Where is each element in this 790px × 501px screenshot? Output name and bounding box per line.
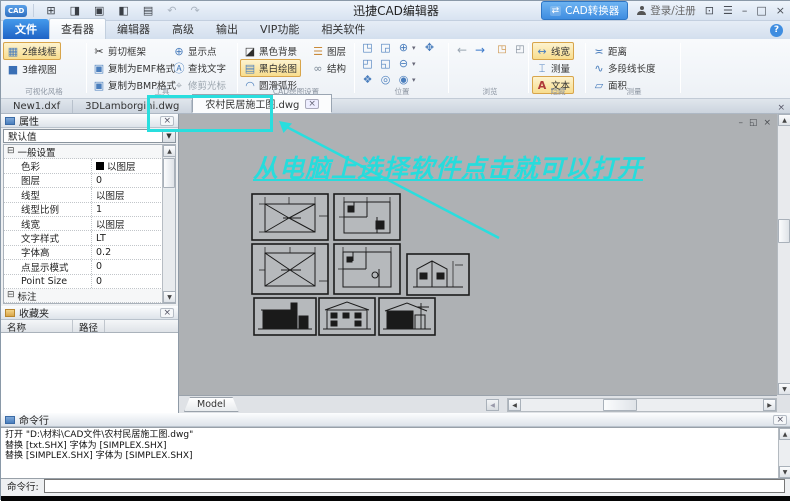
feedback-icon[interactable]: ⊡ (705, 4, 714, 17)
cad-drawing-sheets (249, 191, 473, 341)
doc-tab-new1[interactable]: New1.dxf (1, 100, 73, 113)
favorites-list[interactable] (1, 333, 178, 414)
divider (86, 43, 87, 93)
divider (528, 43, 529, 93)
command-icon (5, 416, 15, 424)
command-input-row: 命令行: (1, 478, 790, 494)
tab-editor[interactable]: 编辑器 (106, 19, 161, 39)
scroll-down-icon[interactable]: ▼ (779, 466, 790, 478)
section-general[interactable]: ⊟ 一般设置 (4, 145, 175, 159)
distance-button[interactable]: ≍ 距离 (589, 42, 631, 60)
cube-3d-icon: ■ (7, 64, 19, 75)
scroll-thumb[interactable] (603, 399, 637, 411)
color-swatch (96, 162, 104, 170)
distance-icon: ≍ (593, 46, 605, 57)
group-cad-draw-settings: ◪ 黑色背景 ▤ 黑白绘图 ◠ 圆滑弧形 ☰ 图层 ∞ 结构 CAD绘图设置 (240, 39, 352, 97)
favorites-close-icon[interactable]: × (160, 308, 174, 318)
group-position: ◳ ◲ ⊕ ▾ ✥ ◰ ◱ ⊖ ▾ ❖ ◎ ◉ ▾ 位置 (358, 39, 446, 97)
property-row[interactable]: Point Size 0 (4, 275, 175, 289)
copy-emf-icon: ▣ (93, 63, 105, 74)
divider (448, 43, 449, 93)
menu-icon[interactable]: ☰ (723, 4, 733, 17)
tab-vip[interactable]: VIP功能 (249, 19, 310, 39)
wireframe-2d-button[interactable]: ▦ 2维线框 (3, 42, 61, 60)
view-3d-button[interactable]: ■ 3维视图 (3, 60, 61, 78)
file-menu-button[interactable]: 文件 (3, 19, 49, 39)
copy-emf-button[interactable]: ▣ 复制为EMF格式 (89, 59, 179, 77)
measure-toggle-icon: ⌶ (536, 63, 548, 74)
group-hide: ↔ 线宽 ⌶ 测量 A 文本 隐藏 (532, 39, 584, 97)
property-row[interactable]: 色彩 以图层 (4, 159, 175, 173)
favorites-folder-icon (5, 309, 15, 317)
export-pdf-icon[interactable]: ◧ (118, 4, 128, 17)
lineweight-button[interactable]: ↔ 线宽 (532, 42, 574, 60)
group-label: 位置 (358, 86, 446, 97)
group-label: 隐藏 (532, 86, 584, 97)
converter-icon: ⇄ (550, 6, 562, 16)
property-row[interactable]: 线型 以图层 (4, 188, 175, 202)
scroll-down-icon[interactable]: ▼ (778, 383, 790, 395)
property-grid: ⊟ 一般设置 色彩 以图层 图层 0 线型 以图层 线型比例 1 线宽 以图层 … (3, 144, 176, 304)
section-dimension[interactable]: ⊟ 标注 (4, 289, 175, 303)
menu-bar: 文件 查看器 编辑器 高级 输出 VIP功能 相关软件 ? (1, 21, 790, 39)
canvas-bottom-bar: Model ◀ ◀ ▶ (179, 395, 790, 413)
tab-output[interactable]: 输出 (205, 19, 249, 39)
prev-sheet-icon[interactable]: ◰ (512, 43, 528, 57)
mdi-close-icon[interactable]: × (763, 118, 771, 128)
cut-frame-button[interactable]: ✂ 剪切框架 (89, 42, 150, 60)
property-row[interactable]: 线宽 以图层 (4, 217, 175, 231)
model-tab[interactable]: Model (184, 397, 239, 412)
canvas-vscrollbar[interactable]: ▲ ▼ (777, 114, 790, 395)
command-panel: 命令行 × 打开 "D:\材料\CAD文件\农村民居施工图.dwg" 替换 [t… (1, 413, 790, 497)
chevron-down-icon[interactable]: ▼ (162, 130, 175, 142)
group-visual-style: ▦ 2维线框 ■ 3维视图 可视化风格 (3, 39, 85, 97)
new-file-icon[interactable]: ⊞ (46, 4, 55, 17)
app-logo-icon: CAD (5, 5, 27, 17)
command-input[interactable] (44, 479, 785, 493)
left-panel: 属性 × 默认值 ▼ ⊟ 一般设置 色彩 以图层 图层 0 线型 以图层 线型比… (1, 114, 179, 413)
open-file-icon[interactable]: ◨ (70, 4, 80, 17)
back-icon[interactable]: ← (454, 43, 470, 57)
doc-tab-lamborgini[interactable]: 3DLamborgini.dwg (73, 100, 192, 113)
zoom-in-dropdown-icon[interactable]: ▾ (412, 44, 416, 52)
properties-close-icon[interactable]: × (160, 116, 174, 126)
doc-tab-active[interactable]: 农村民居施工图.dwg × (192, 94, 332, 113)
group-label: 浏览 (452, 86, 528, 97)
fit-view-icon[interactable]: ◱ (378, 57, 393, 71)
cascade-views-icon[interactable]: ❖ (360, 73, 375, 87)
bw-drawing-button[interactable]: ▤ 黑白绘图 (240, 59, 301, 77)
command-title: 命令行 (19, 412, 49, 427)
layers-button[interactable]: ☰ 图层 (308, 42, 350, 60)
app-window: { "glyphs": { "qat_new": "⊞", "qat_open"… (0, 0, 790, 500)
divider (680, 43, 681, 93)
forward-icon[interactable]: → (472, 43, 488, 57)
bottom-black-bar (1, 496, 790, 501)
pan-window-icon[interactable]: ◳ (360, 41, 375, 55)
group-measure: ≍ 距离 ∿ 多段线长度 ▱ 面积 测量 (589, 39, 679, 97)
scrollbar-corner (777, 395, 790, 413)
close-button[interactable]: × (776, 4, 785, 17)
favorites-col-path[interactable]: 路径 (73, 320, 105, 332)
command-log[interactable]: 打开 "D:\材料\CAD文件\农村民居施工图.dwg" 替换 [txt.SHX… (1, 427, 790, 479)
tab-viewer[interactable]: 查看器 (49, 18, 106, 39)
lineweight-icon: ↔ (536, 46, 548, 57)
zoom-previous-icon[interactable]: ◎ (378, 73, 393, 87)
scroll-up-icon[interactable]: ▲ (778, 114, 790, 126)
show-points-icon: ⊕ (173, 46, 185, 57)
zoom-out-icon[interactable]: ⊖ (396, 57, 411, 71)
collapse-icon[interactable]: ⊟ (7, 147, 15, 156)
group-label: 测量 (589, 86, 679, 97)
scroll-up-icon[interactable]: ▲ (779, 428, 790, 440)
duplicate-view-icon[interactable]: ◰ (360, 57, 375, 71)
group-tools: ✂ 剪切框架 ▣ 复制为EMF格式 ▣ 复制为BMP格式 ⊕ 显示点 Ⓐ 查找文… (89, 39, 235, 97)
pan-hand-icon[interactable]: ✥ (422, 41, 437, 55)
converter-label: CAD转换器 (565, 3, 619, 18)
command-log-scrollbar[interactable]: ▲ ▼ (778, 428, 790, 478)
print-icon[interactable]: ▤ (143, 4, 153, 17)
divider (354, 43, 355, 93)
mdi-controls: – ◱ × (738, 118, 771, 128)
structure-button[interactable]: ∞ 结构 (308, 59, 350, 77)
properties-icon (5, 117, 15, 125)
measure-toggle-button[interactable]: ⌶ 测量 (532, 59, 574, 77)
properties-title: 属性 (19, 113, 39, 128)
next-sheet-icon[interactable]: ◳ (494, 43, 510, 57)
show-points-button[interactable]: ⊕ 显示点 (169, 42, 221, 60)
collapse-icon[interactable]: ⊟ (7, 291, 15, 300)
preset-dropdown[interactable]: 默认值 ▼ (3, 129, 176, 143)
property-row[interactable]: 点显示模式 0 (4, 260, 175, 274)
properties-header: 属性 × (1, 114, 178, 128)
wireframe-2d-icon: ▦ (7, 46, 19, 57)
zoom-out-dropdown-icon[interactable]: ▾ (412, 60, 416, 68)
log-line: 替换 [SIMPLEX.SHX] 字体为 [SIMPLEX.SHX] (5, 451, 787, 462)
find-text-icon: Ⓐ (173, 63, 185, 74)
property-grid-scrollbar[interactable]: ▲ ▼ (162, 145, 175, 303)
canvas-hscrollbar[interactable]: ◀ ▶ (507, 398, 777, 412)
user-icon (637, 6, 646, 15)
document-tab-bar: New1.dxf 3DLamborgini.dwg 农村民居施工图.dwg × … (1, 99, 790, 114)
titlebar-right: ⇄ CAD转换器 登录/注册 ⊡ ☰ – □ × (541, 1, 790, 20)
drawing-canvas[interactable]: – ◱ × (179, 114, 790, 413)
black-background-icon: ◪ (244, 46, 256, 57)
scroll-down-icon[interactable]: ▼ (163, 291, 176, 303)
cut-frame-icon: ✂ (93, 46, 105, 57)
help-icon[interactable]: ? (770, 24, 783, 37)
divider (585, 43, 586, 93)
zoom-extents-icon[interactable]: ◉ (396, 73, 411, 87)
quick-access-toolbar: ⊞ ◨ ▣ ◧ ▤ ↶ ↷ (33, 4, 199, 17)
undo-icon[interactable]: ↶ (167, 4, 176, 17)
scroll-left-icon[interactable]: ◀ (508, 399, 521, 411)
zoom-extents-dropdown-icon[interactable]: ▾ (412, 76, 416, 84)
mdi-restore-icon[interactable]: ◱ (749, 118, 758, 128)
log-line: 替换 [txt.SHX] 字体为 [SIMPLEX.SHX] (5, 441, 787, 452)
group-browse: ← → ◳ ◰ 浏览 (452, 39, 528, 97)
polyline-length-icon: ∿ (593, 63, 605, 74)
find-text-button[interactable]: Ⓐ 查找文字 (169, 59, 230, 77)
divider (237, 43, 238, 93)
minimize-button[interactable]: – (742, 4, 748, 17)
tab-close-icon[interactable]: × (305, 99, 319, 109)
favorites-col-name[interactable]: 名称 (1, 320, 73, 332)
tab-scroll-left-icon[interactable]: ◀ (486, 399, 499, 411)
titlebar: CAD ⊞ ◨ ▣ ◧ ▤ ↶ ↷ 迅捷CAD编辑器 ⇄ CAD转换器 登录/注… (1, 1, 790, 21)
mdi-minimize-icon[interactable]: – (738, 118, 743, 128)
property-row[interactable]: 字体高 0.2 (4, 246, 175, 260)
cad-converter-button[interactable]: ⇄ CAD转换器 (541, 1, 629, 20)
tab-advanced[interactable]: 高级 (161, 19, 205, 39)
property-row[interactable]: 文字样式 LT (4, 231, 175, 245)
bw-drawing-icon: ▤ (244, 63, 256, 74)
save-icon[interactable]: ▣ (94, 4, 104, 17)
login-register-button[interactable]: 登录/注册 (637, 3, 696, 18)
command-prompt-label: 命令行: (7, 479, 39, 493)
tabbar-close-icon[interactable]: × (777, 103, 785, 113)
scroll-right-icon[interactable]: ▶ (763, 399, 776, 411)
redo-icon[interactable]: ↷ (190, 4, 199, 17)
scroll-thumb[interactable] (778, 219, 790, 243)
favorites-title: 收藏夹 (19, 305, 49, 320)
zoom-in-icon[interactable]: ⊕ (396, 41, 411, 55)
black-background-button[interactable]: ◪ 黑色背景 (240, 42, 301, 60)
property-row[interactable]: 线型比例 1 (4, 203, 175, 217)
favorites-header: 收藏夹 × (1, 306, 178, 320)
tab-related[interactable]: 相关软件 (310, 19, 376, 39)
log-line: 打开 "D:\材料\CAD文件\农村民居施工图.dwg" (5, 430, 787, 441)
scroll-up-icon[interactable]: ▲ (163, 145, 176, 157)
ribbon: ▦ 2维线框 ■ 3维视图 可视化风格 ✂ 剪切框架 ▣ 复制为EMF格式 ▣ … (1, 39, 790, 99)
polyline-length-button[interactable]: ∿ 多段线长度 (589, 59, 660, 77)
layers-icon: ☰ (312, 46, 324, 57)
command-header: 命令行 × (1, 413, 790, 427)
command-close-icon[interactable]: × (773, 415, 787, 425)
maximize-button[interactable]: □ (756, 4, 766, 17)
login-label: 登录/注册 (650, 3, 696, 18)
group-label: 可视化风格 (3, 86, 85, 97)
structure-link-icon: ∞ (312, 63, 324, 74)
scroll-thumb[interactable] (163, 158, 175, 188)
zoom-window-icon[interactable]: ◲ (378, 41, 393, 55)
favorites-columns: 名称 路径 (1, 320, 178, 333)
property-row[interactable]: 图层 0 (4, 174, 175, 188)
